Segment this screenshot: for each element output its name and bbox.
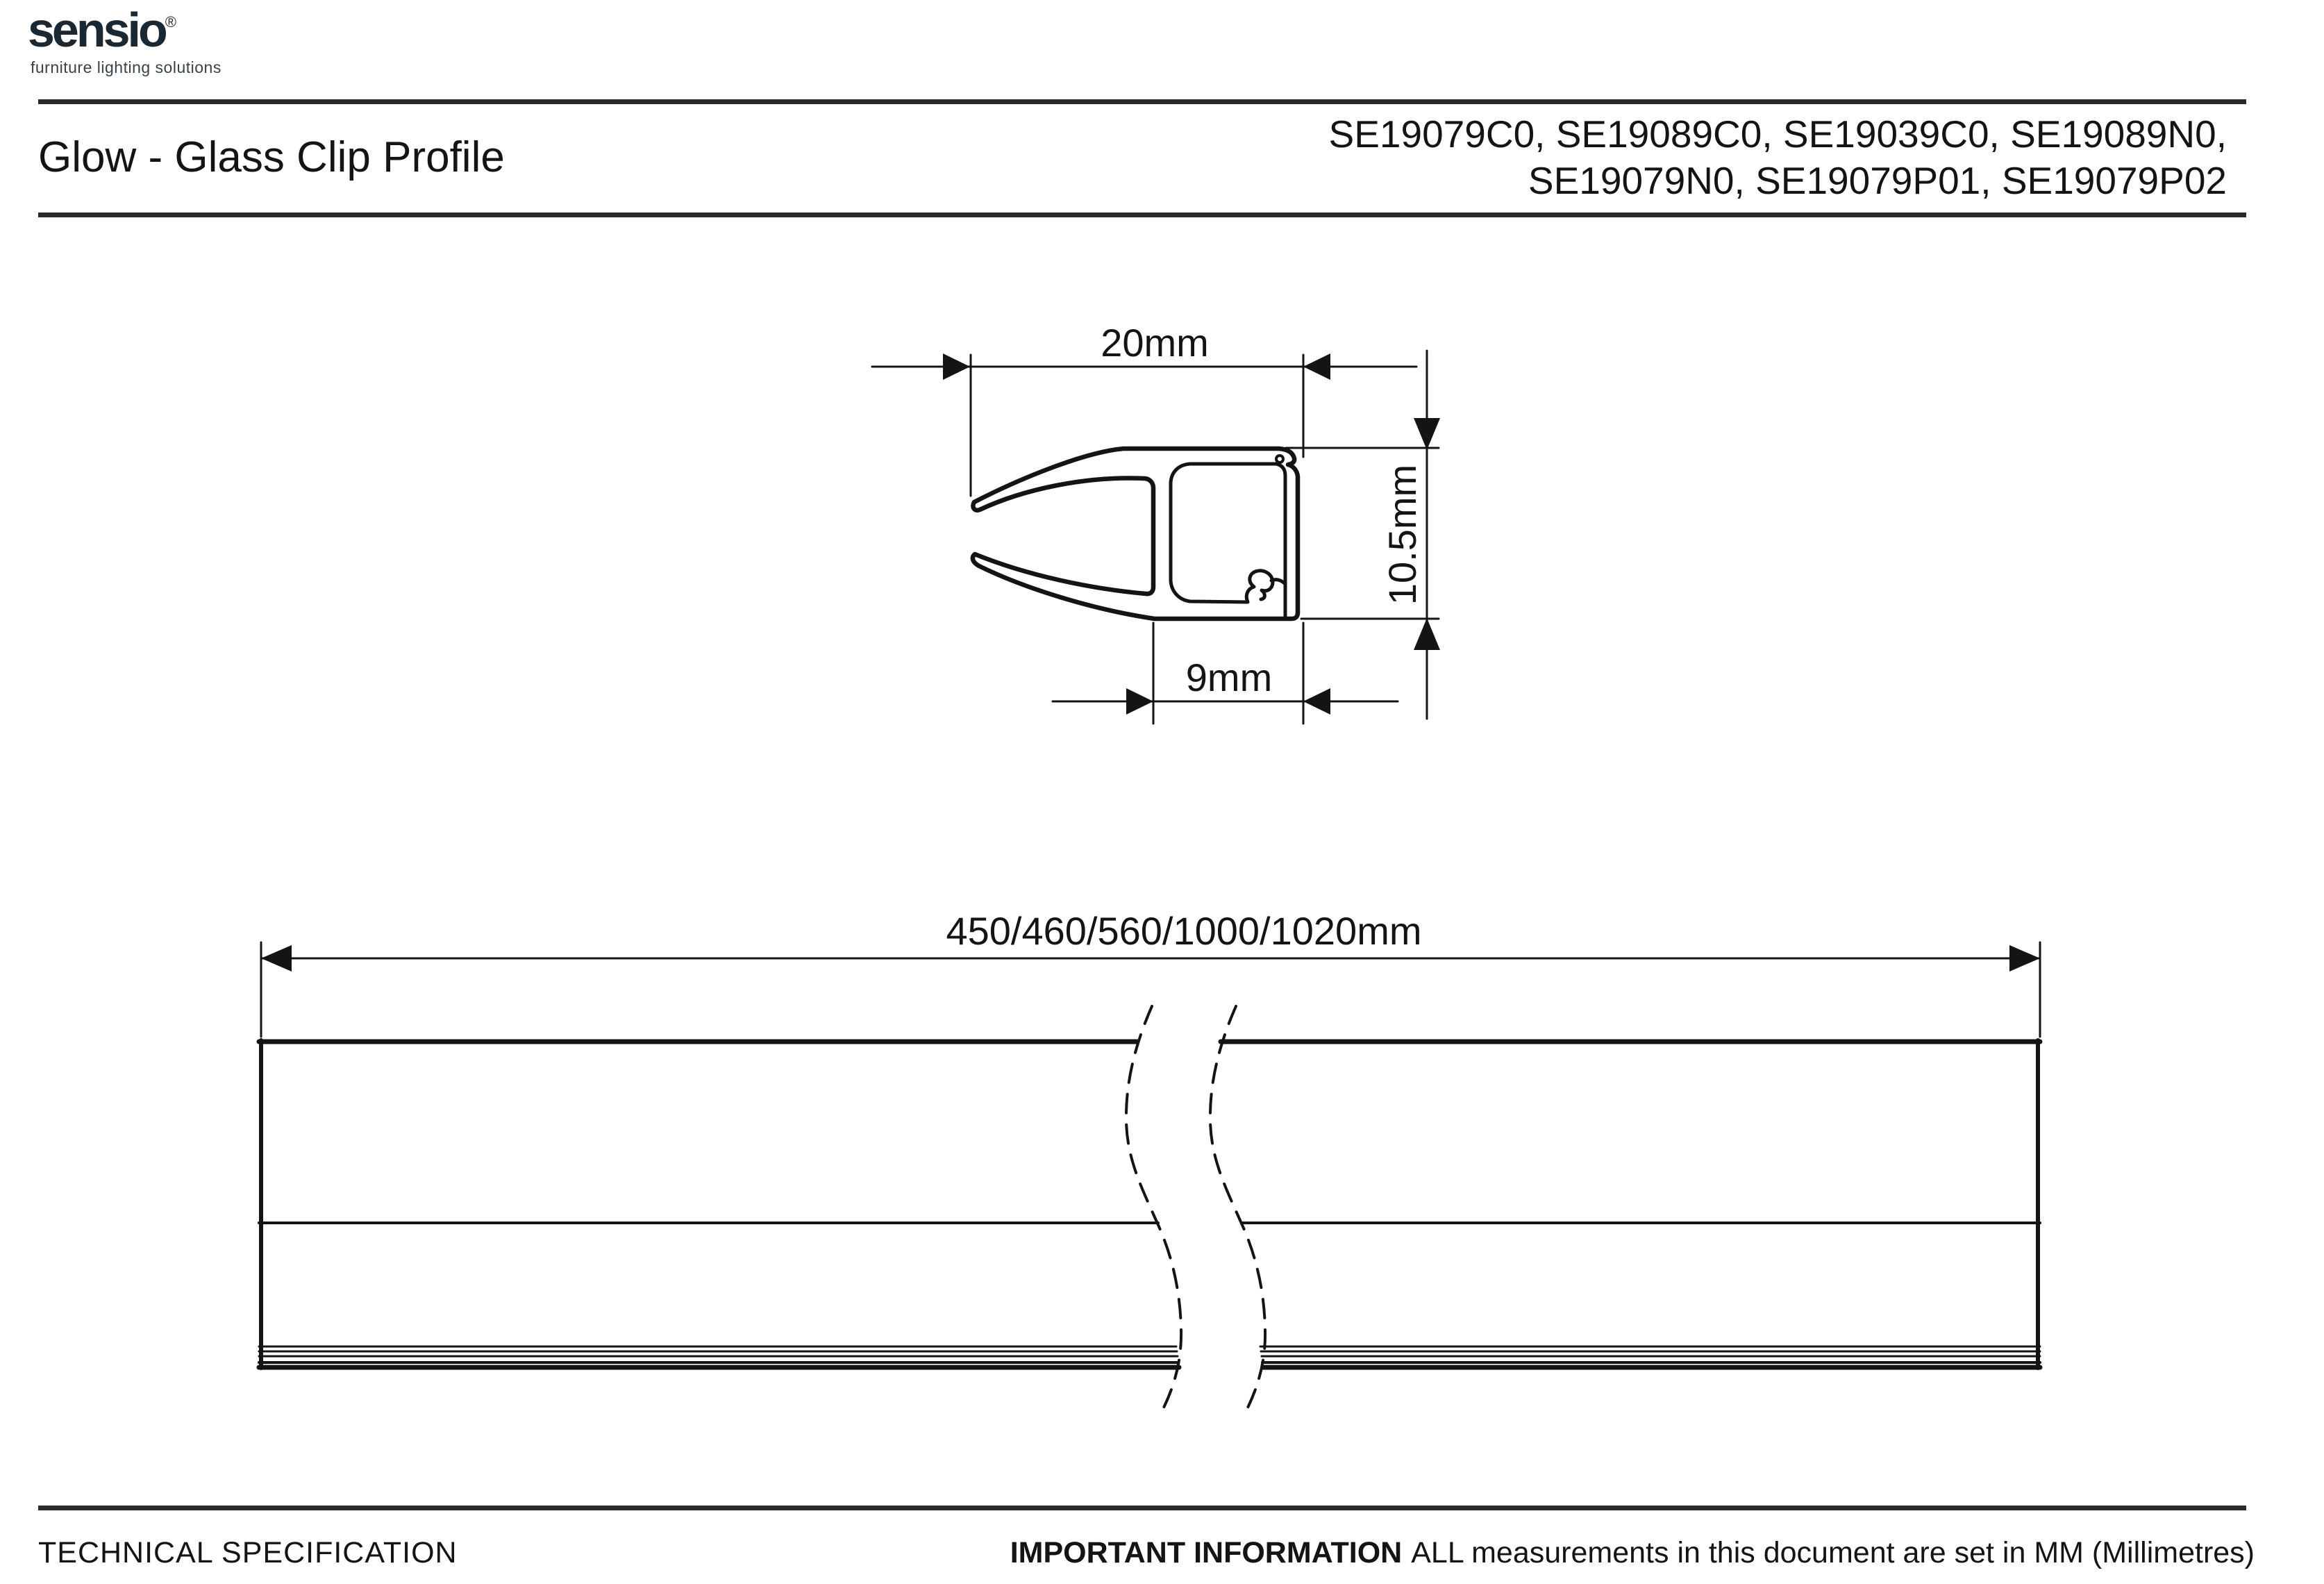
technical-drawing-canvas: [0, 0, 2324, 1584]
profile-inner-channel: [1171, 464, 1275, 602]
dim-label-9mm: 9mm: [1186, 658, 1272, 697]
break-curve-right: [1210, 1006, 1265, 1409]
profile-inner-right-wall: [1276, 464, 1285, 617]
footer-rule: [38, 1506, 2246, 1510]
footer-important-information: IMPORTANT INFORMATIONALL measurements in…: [1010, 1536, 2255, 1570]
profile-length-drawing: [259, 942, 2040, 1409]
cross-section-drawing: [872, 351, 1440, 724]
arrowhead-icon: [1303, 688, 1330, 715]
dim-label-length: 450/460/560/1000/1020mm: [946, 912, 1422, 951]
profile-bar: [259, 1040, 2040, 1368]
arrowhead-icon: [2009, 945, 2040, 972]
dimension-length: [261, 942, 2040, 1037]
break-curve-left: [1126, 1006, 1181, 1409]
arrowhead-icon: [1126, 688, 1153, 715]
profile-top-notch: [1276, 456, 1283, 462]
arrowhead-icon: [261, 945, 292, 972]
footer-measurement-note: ALL measurements in this document are se…: [1411, 1536, 2255, 1569]
footer-document-type: TECHNICAL SPECIFICATION: [38, 1536, 458, 1570]
dim-label-10-5mm: 10.5mm: [1383, 465, 1422, 605]
arrowhead-icon: [943, 353, 970, 380]
arrowhead-icon: [1303, 353, 1330, 380]
dim-label-20mm: 20mm: [1101, 324, 1209, 362]
footer-important-label: IMPORTANT INFORMATION: [1010, 1536, 1403, 1569]
break-symbol: [1126, 1006, 1265, 1409]
profile-outer-contour: [973, 449, 1298, 619]
arrowhead-icon: [1414, 618, 1440, 650]
arrowhead-icon: [1414, 418, 1440, 450]
dimension-20mm: [872, 353, 1416, 496]
